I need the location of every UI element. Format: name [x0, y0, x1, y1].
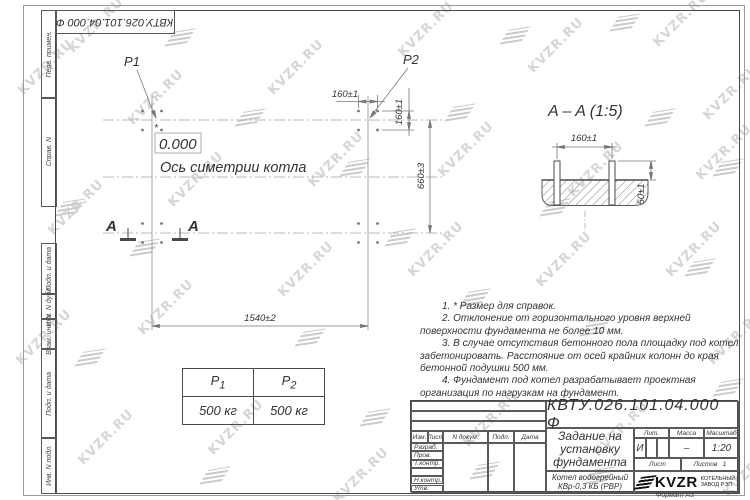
section-dim-160 — [552, 143, 617, 159]
plan-label-p1: P1 — [124, 54, 140, 69]
tb-sheets-value: 1 — [723, 461, 727, 468]
tb-mass-value: – — [669, 438, 704, 458]
loads-table-value-row: 500 кг 500 кг — [183, 397, 325, 425]
tb-row-blank — [411, 468, 443, 476]
change-row-3 — [411, 421, 546, 431]
loads-table-header-p1: P1 — [183, 369, 254, 397]
loads-table-value-p1: 500 кг — [183, 397, 254, 425]
tb-lit-cell-2 — [646, 438, 657, 458]
tb-product-name: Котел водогрейный КВр-0,3 КБ (РВР) — [546, 471, 634, 493]
kvzr-company-caption: КОТЕЛЬНЫЙ ЗАВОД РЭП — [701, 476, 735, 488]
tb-row-nkontr: Н.контр. — [411, 476, 443, 484]
tb-row-tkontr: Т.контр. — [411, 460, 443, 468]
loads-table: P1 P2 500 кг 500 кг — [182, 368, 325, 425]
load-point-leaders — [137, 68, 408, 118]
dim-160-top-value: 160±1 — [332, 89, 358, 100]
tb-col-docnum-sign — [443, 443, 488, 493]
section-mark-letter-left: A — [105, 218, 117, 235]
tb-header-podp: Подп. — [488, 431, 514, 443]
dim-1540-value: 1540±2 — [244, 313, 276, 324]
plan-label-p2: P2 — [403, 52, 420, 67]
dim-660 — [429, 120, 432, 233]
tb-col-data-sign — [514, 443, 546, 493]
loads-table-header-row: P1 P2 — [183, 369, 325, 397]
tb-row-razrab: Разраб. — [411, 443, 443, 451]
kvzr-logo-text: KVZR — [655, 474, 698, 491]
tb-drawing-title: Задание на установку фундамента — [546, 428, 634, 471]
note-3: 3. В случае отсутствия бетонного пола пл… — [420, 338, 746, 375]
section-cut-marks — [120, 228, 188, 240]
loads-table-header-p2: P2 — [254, 369, 325, 397]
note-1: 1. * Размер для справок. — [420, 301, 746, 313]
tb-header-izm: Изм. — [411, 431, 428, 443]
section-view-title: A – A (1:5) — [547, 103, 623, 120]
format-label: Формат А3 — [610, 492, 740, 499]
tb-scale-value: 1:20 — [704, 438, 739, 458]
tb-mass-label: Масса — [669, 428, 704, 438]
section-dim-50 — [618, 161, 656, 180]
tb-sheet-label: Лист — [634, 458, 681, 471]
tb-row-utv: Утв. — [411, 485, 443, 494]
tb-lit-cell-3 — [657, 438, 669, 458]
zero-level-value: 0.000 — [159, 136, 197, 153]
kvzr-logo-icon — [633, 475, 657, 490]
loads-table-value-p2: 500 кг — [254, 397, 325, 425]
symmetry-axis-label: Ось симетрии котла — [160, 160, 306, 176]
title-block: Изм. Лист N докум. Подп. Дата Разраб. Пр… — [410, 400, 738, 492]
dim-1540 — [152, 325, 368, 328]
section-dim-50-value: 50±1 — [636, 183, 647, 204]
tb-lit-value: И — [634, 438, 646, 458]
tb-doc-number: КВТУ.026.101.04.000 Ф — [546, 401, 739, 428]
note-2: 2. Отклонение от горизонтального уровня … — [420, 313, 746, 338]
reference-asterisk: * — [154, 123, 159, 134]
section-mark-letter-right: A — [187, 218, 199, 235]
tb-header-list: Лист — [428, 431, 443, 443]
dim-660-value: 660±3 — [416, 162, 427, 189]
drawing-sheet: KVZR.RUKVZR.RUKVZR.RUKVZR.RUKVZR.RUKVZR.… — [0, 0, 750, 500]
tb-scale-label: Масштаб — [704, 428, 739, 438]
change-row-1 — [411, 401, 546, 411]
tb-company-cell: KVZR КОТЕЛЬНЫЙ ЗАВОД РЭП — [634, 471, 739, 493]
tb-sheets-cell: Листов 1 — [681, 458, 739, 471]
tb-col-podp-sign — [488, 443, 514, 493]
section-dim-160-value: 160±1 — [571, 133, 597, 144]
change-row-2 — [411, 411, 546, 421]
dim-160-side-value: 160±1 — [394, 99, 405, 125]
tb-lit-label: Лит. — [634, 428, 669, 438]
plan-axis-lines — [103, 120, 443, 233]
notes-block: 1. * Размер для справок. 2. Отклонение о… — [420, 301, 746, 400]
tb-row-prov: Пров. — [411, 451, 443, 459]
tb-header-doc: N докум. — [443, 431, 488, 443]
plan-column-axis-verticals — [152, 96, 368, 330]
tb-header-data: Дата — [514, 431, 546, 443]
